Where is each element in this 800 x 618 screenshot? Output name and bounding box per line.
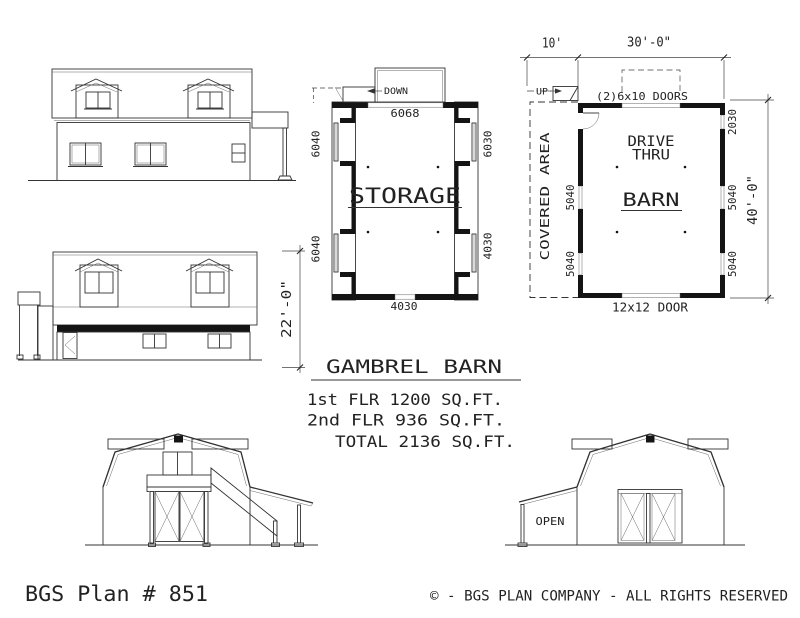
front-end-elevation [85, 434, 318, 547]
footing [17, 355, 23, 359]
plan-number: BGS Plan # 851 [25, 582, 208, 606]
bottom-wall [415, 294, 478, 300]
summary-line1: 1st FLR 1200 SQ.FT. [307, 390, 503, 409]
plan-drawing: 22'-0" [0, 0, 800, 618]
lean-to [250, 487, 313, 547]
stair-flight [38, 306, 53, 360]
footing [34, 355, 40, 359]
hay-hood [646, 436, 655, 443]
storage-room-label: STORAGE [349, 184, 461, 208]
dormer [186, 259, 233, 307]
stair-landing [18, 292, 40, 305]
crossbuck-doors [618, 490, 682, 544]
win-5040-right-mid: 5040 [727, 185, 739, 211]
dim-30ft: 30'-0" [627, 36, 671, 51]
window [133, 143, 168, 167]
top-door-opening [622, 104, 680, 108]
footing [278, 176, 292, 180]
rear-end-elevation: OPEN [505, 434, 745, 547]
down-label: DOWN [384, 87, 408, 97]
exterior-stair [17, 292, 53, 360]
summary-title: GAMBREL BARN [326, 356, 502, 378]
window [208, 334, 231, 348]
loft-doors-dashed [622, 70, 680, 92]
window-opening [455, 118, 478, 166]
deck-railing [147, 475, 211, 487]
door-bottom-label: 12x12 DOOR [612, 300, 688, 315]
first-floor-wall [57, 332, 250, 360]
entry-door [63, 333, 77, 359]
window-opening [720, 183, 725, 212]
post [521, 505, 524, 544]
dim-6030: 6030 [483, 131, 495, 158]
footer: BGS Plan # 851 © - BGS PLAN COMPANY - AL… [25, 582, 788, 606]
bottom-wall [680, 293, 725, 298]
gambrel-roof [53, 252, 257, 325]
lean-to-roof [252, 112, 292, 180]
drive-thru-label: THRU [632, 148, 670, 164]
covered-area-label: COVERED AREA [537, 132, 552, 261]
dim-6040-lower: 6040 [311, 236, 323, 263]
exterior-stair [211, 468, 280, 547]
small-window [232, 144, 245, 162]
window [143, 334, 166, 348]
bottom-door-opening [622, 294, 680, 298]
dormer [183, 79, 234, 118]
barn-floor-plan: UP 10' 30'-0" 40'-0" [520, 36, 774, 315]
doors-top-label: (2)6x10 DOORS [596, 90, 688, 103]
window-opening [720, 112, 725, 132]
bottom-wall [332, 294, 395, 300]
summary-line3: TOTAL 2136 SQ.FT. [335, 432, 515, 451]
top-wall [332, 102, 368, 108]
top-wall [680, 103, 725, 108]
dim-6040-upper: 6040 [311, 131, 323, 158]
storage-floor-plan: DOWN 6068 STORAGE 4030 6040 6040 6030 40… [311, 68, 495, 313]
bottom-wall [578, 293, 622, 298]
post [283, 128, 287, 176]
lower-side-elevation: 22'-0" [17, 245, 305, 373]
top-wall [443, 102, 478, 108]
window [68, 143, 103, 167]
plan-sheet: 22'-0" [0, 0, 800, 618]
height-dimension: 22'-0" [280, 245, 305, 373]
win-5040-right-lower: 5040 [727, 251, 739, 277]
area-summary: GAMBREL BARN 1st FLR 1200 SQ.FT. 2nd FLR… [307, 356, 521, 451]
window-opening [578, 183, 583, 212]
hay-door [163, 452, 192, 475]
win-5040-left-mid: 5040 [565, 185, 577, 211]
copyright-notice: © - BGS PLAN COMPANY - ALL RIGHTS RESERV… [430, 589, 788, 605]
dormer [75, 259, 122, 307]
window-opening [333, 229, 356, 277]
summary-line2: 2nd FLR 936 SQ.FT. [307, 411, 505, 430]
top-wall [578, 103, 622, 108]
newel-post [274, 521, 278, 543]
dim-40ft: 40'-0" [746, 175, 761, 225]
up-label: UP [536, 88, 548, 98]
window-opening [333, 118, 356, 166]
door-swing [583, 113, 599, 129]
dim-22-0: 22'-0" [280, 280, 295, 338]
win-5040-left-lower: 5040 [565, 251, 577, 277]
dim-4030-bottom: 4030 [391, 300, 418, 313]
dormer [71, 79, 122, 118]
deck-band [147, 487, 211, 492]
post [298, 505, 301, 543]
win-2030-right: 2030 [727, 109, 739, 135]
window-opening [578, 250, 583, 278]
window-opening [455, 229, 478, 277]
dim-4030-right: 4030 [483, 233, 495, 260]
upper-side-elevation [28, 69, 296, 181]
down-stairs [343, 87, 375, 102]
bottom-opening [395, 295, 415, 299]
dim-6068: 6068 [391, 107, 420, 120]
dim-10ft: 10' [542, 37, 562, 52]
eave-shadow [57, 325, 250, 332]
open-lean-to: OPEN [518, 487, 577, 547]
hay-hood [174, 436, 183, 443]
barn-room-label: BARN [623, 189, 680, 211]
open-label: OPEN [536, 515, 565, 528]
window-opening [720, 250, 725, 278]
